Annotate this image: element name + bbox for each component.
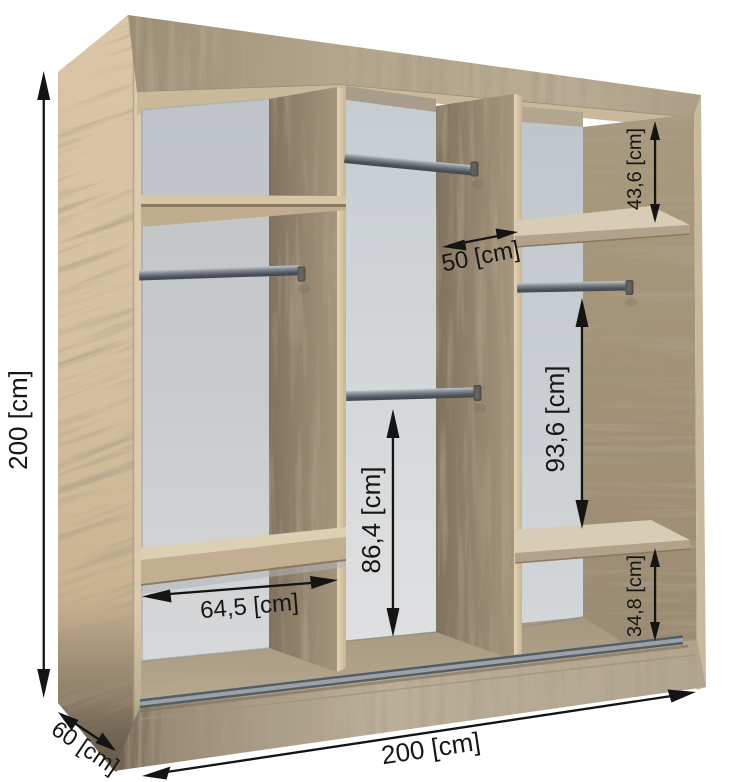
svg-text:34,8 [cm]: 34,8 [cm]	[624, 555, 646, 637]
svg-text:86,4 [cm]: 86,4 [cm]	[356, 467, 386, 574]
svg-text:93,6 [cm]: 93,6 [cm]	[540, 366, 570, 473]
svg-text:200 [cm]: 200 [cm]	[3, 370, 33, 470]
svg-text:43,6 [cm]: 43,6 [cm]	[624, 128, 646, 210]
